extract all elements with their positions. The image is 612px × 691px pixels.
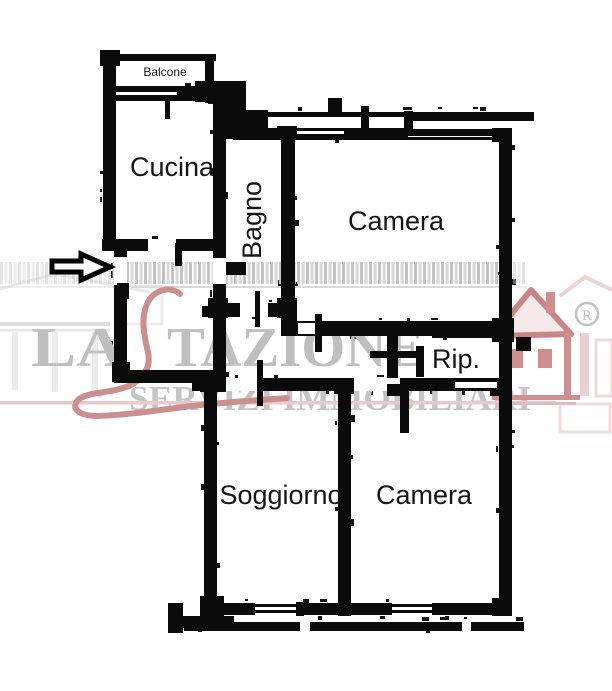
svg-text:Soggiorno: Soggiorno (219, 480, 342, 510)
svg-text:Bagno: Bagno (237, 181, 267, 259)
svg-text:Balcone: Balcone (143, 65, 187, 79)
svg-text:Camera: Camera (376, 480, 473, 510)
svg-text:Camera: Camera (348, 206, 445, 236)
svg-text:LA: LA (31, 317, 126, 379)
svg-text:Cucina: Cucina (130, 152, 215, 182)
svg-text:R: R (582, 308, 592, 324)
svg-text:Rip.: Rip. (432, 344, 480, 374)
